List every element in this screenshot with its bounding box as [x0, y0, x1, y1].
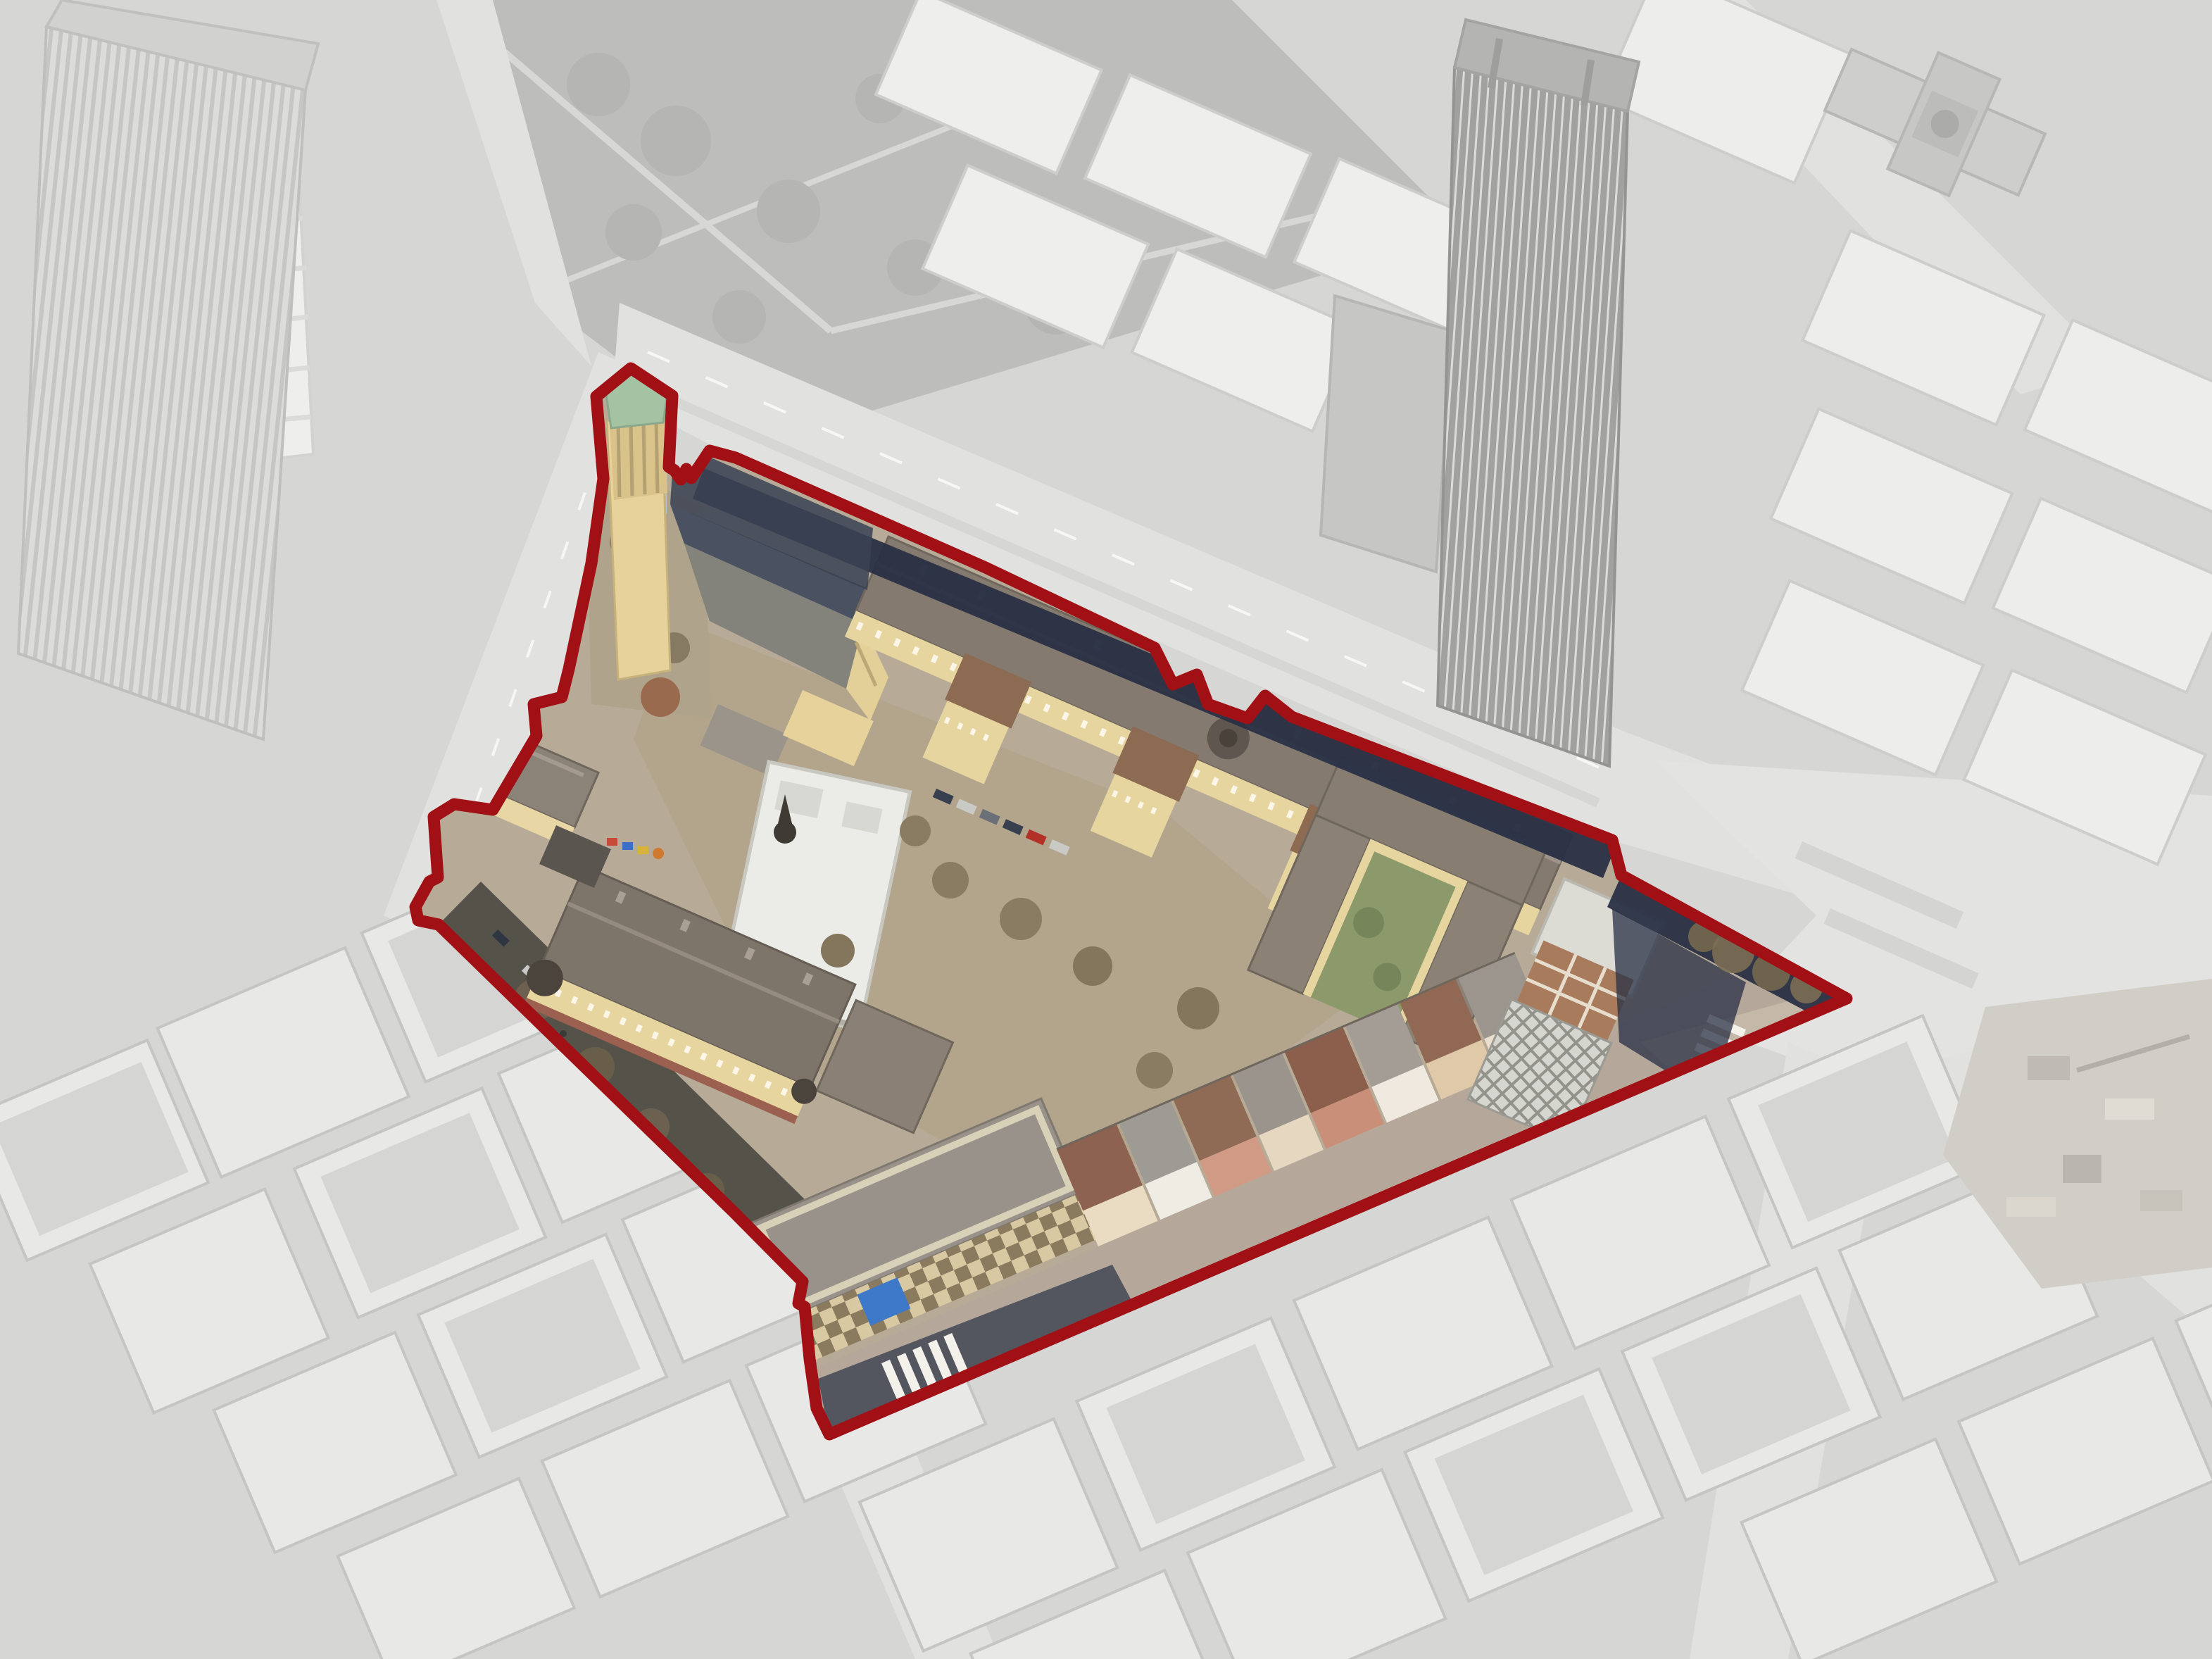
aerial-map — [0, 0, 2212, 1659]
red-tree — [641, 677, 680, 717]
aerial-map-stage — [0, 0, 2212, 1659]
